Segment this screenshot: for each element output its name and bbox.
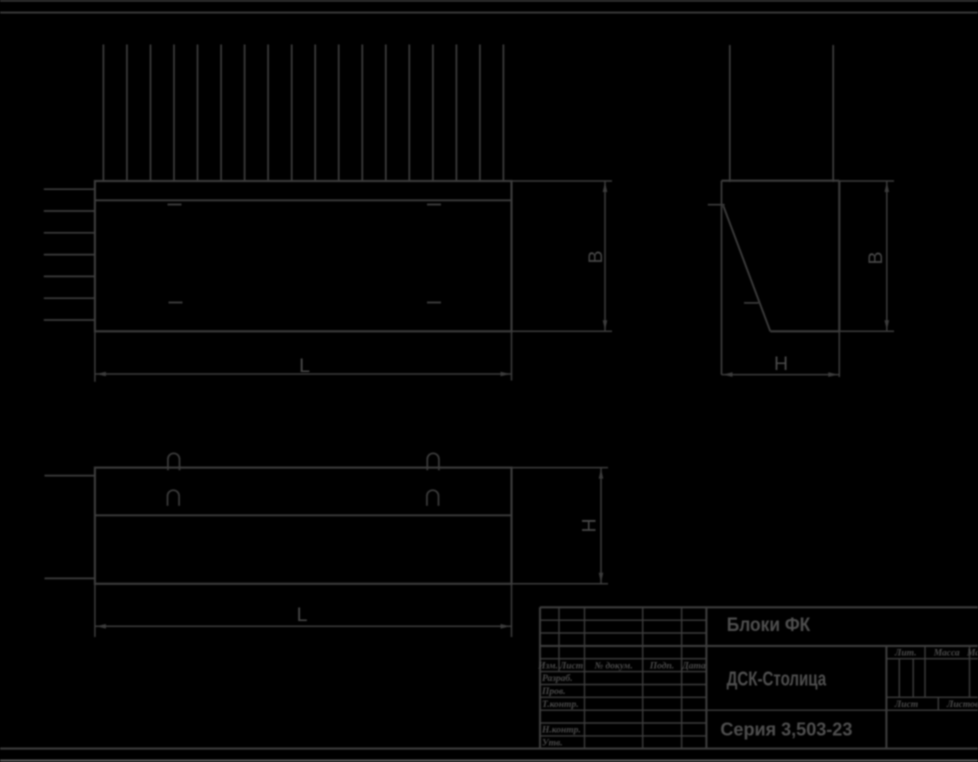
- svg-text:Дата: Дата: [681, 661, 706, 671]
- svg-text:ДСК-Столица: ДСК-Столица: [727, 669, 827, 691]
- svg-text:Лист: Лист: [559, 661, 583, 671]
- svg-text:Лит.: Лит.: [894, 649, 917, 659]
- svg-text:Листов: Листов: [946, 700, 978, 710]
- svg-text:Разраб.: Разраб.: [542, 673, 573, 684]
- svg-text:B: B: [865, 251, 887, 264]
- svg-text:L: L: [299, 355, 310, 377]
- svg-text:Т.контр.: Т.контр.: [542, 700, 579, 710]
- svg-text:Изм.: Изм.: [537, 661, 558, 671]
- svg-text:Утв.: Утв.: [542, 738, 563, 748]
- svg-text:H: H: [579, 518, 601, 532]
- svg-text:Масса: Масса: [933, 649, 960, 659]
- svg-text:№ докум.: № докум.: [594, 660, 632, 671]
- svg-text:Подп.: Подп.: [649, 660, 674, 671]
- svg-text:Н.контр.: Н.контр.: [541, 726, 581, 736]
- svg-text:Масштаб: Масштаб: [966, 648, 978, 659]
- svg-text:B: B: [585, 250, 607, 263]
- svg-text:Пров.: Пров.: [541, 687, 566, 697]
- svg-text:Блоки ФК: Блоки ФК: [727, 614, 811, 636]
- svg-text:Серия 3,503-23: Серия 3,503-23: [720, 718, 852, 739]
- svg-text:Лист: Лист: [894, 700, 918, 710]
- svg-text:L: L: [297, 604, 308, 626]
- svg-text:H: H: [774, 353, 788, 375]
